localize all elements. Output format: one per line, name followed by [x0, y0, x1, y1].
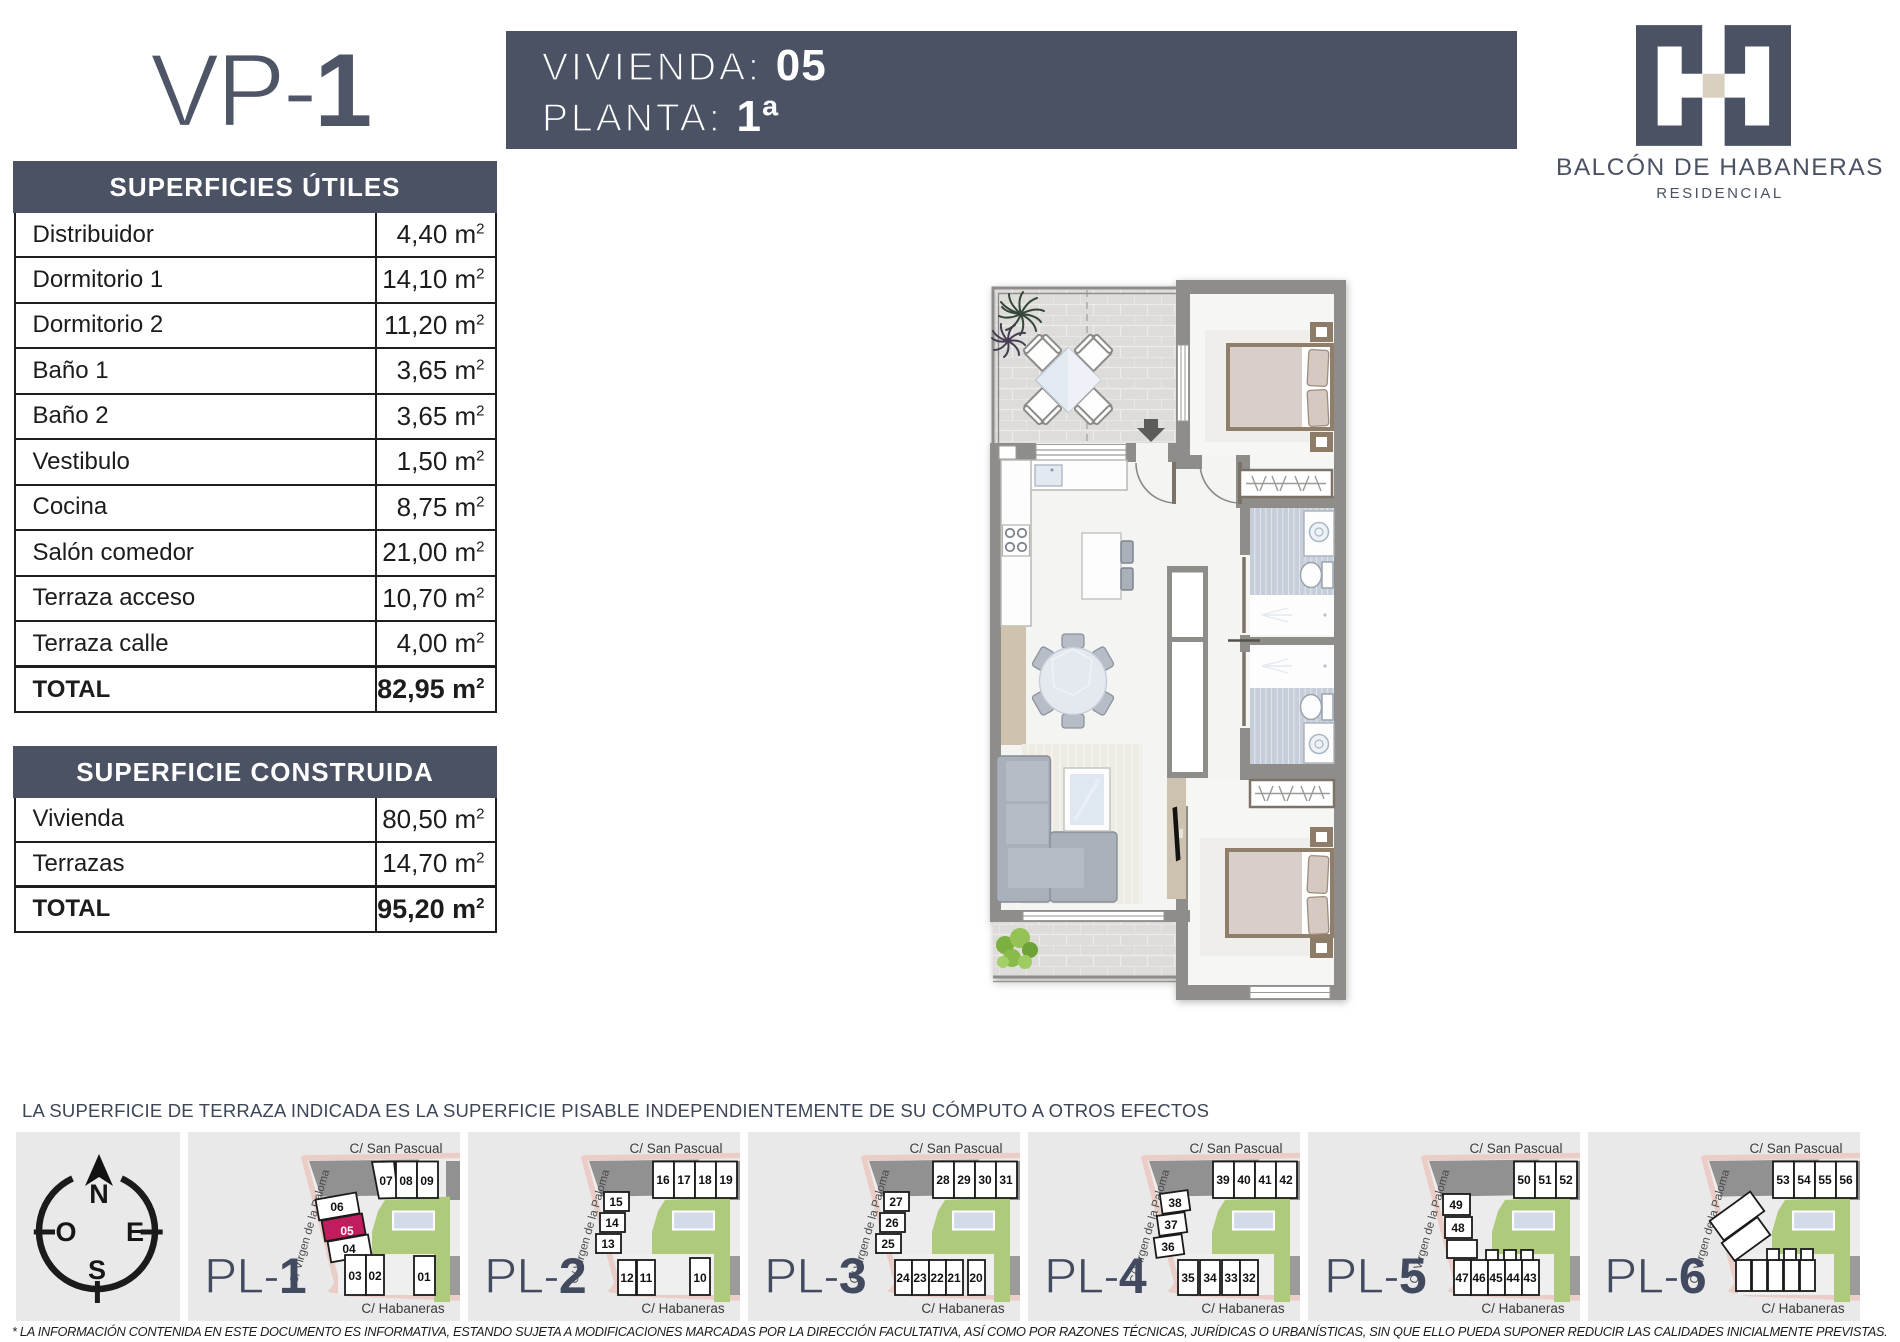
svg-text:40: 40	[1237, 1173, 1251, 1187]
svg-text:34: 34	[1203, 1271, 1217, 1285]
svg-text:14: 14	[605, 1216, 619, 1230]
svg-text:56: 56	[1839, 1173, 1853, 1187]
svg-text:07: 07	[379, 1174, 393, 1188]
svg-text:27: 27	[889, 1195, 903, 1209]
svg-text:15: 15	[609, 1195, 623, 1209]
svg-text:45: 45	[1489, 1271, 1503, 1285]
svg-text:37: 37	[1164, 1218, 1178, 1232]
svg-text:24: 24	[896, 1271, 910, 1285]
svg-text:21: 21	[947, 1271, 961, 1285]
svg-text:05: 05	[340, 1224, 354, 1238]
svg-text:06: 06	[330, 1200, 344, 1214]
svg-text:25: 25	[881, 1237, 895, 1251]
svg-text:39: 39	[1216, 1173, 1230, 1187]
svg-text:48: 48	[1451, 1221, 1465, 1235]
svg-text:13: 13	[601, 1237, 615, 1251]
svg-text:44: 44	[1506, 1271, 1520, 1285]
svg-text:55: 55	[1818, 1173, 1832, 1187]
svg-text:09: 09	[420, 1174, 434, 1188]
svg-text:51: 51	[1538, 1173, 1552, 1187]
svg-text:17: 17	[677, 1173, 691, 1187]
svg-text:E: E	[126, 1217, 144, 1247]
svg-text:10: 10	[693, 1271, 707, 1285]
svg-text:47: 47	[1455, 1271, 1469, 1285]
svg-text:43: 43	[1523, 1271, 1537, 1285]
svg-text:01: 01	[417, 1270, 431, 1284]
svg-text:20: 20	[969, 1271, 983, 1285]
svg-text:35: 35	[1181, 1271, 1195, 1285]
svg-text:38: 38	[1168, 1196, 1182, 1210]
svg-text:19: 19	[719, 1173, 733, 1187]
svg-text:N: N	[89, 1179, 109, 1209]
svg-text:49: 49	[1449, 1198, 1463, 1212]
svg-text:41: 41	[1258, 1173, 1272, 1187]
svg-text:22: 22	[930, 1271, 944, 1285]
svg-text:23: 23	[913, 1271, 927, 1285]
svg-text:53: 53	[1776, 1173, 1790, 1187]
svg-text:42: 42	[1279, 1173, 1293, 1187]
svg-text:18: 18	[698, 1173, 712, 1187]
svg-text:32: 32	[1242, 1271, 1256, 1285]
svg-text:16: 16	[656, 1173, 670, 1187]
svg-text:52: 52	[1559, 1173, 1573, 1187]
svg-text:50: 50	[1517, 1173, 1531, 1187]
svg-text:26: 26	[885, 1216, 899, 1230]
svg-text:36: 36	[1161, 1240, 1175, 1254]
svg-text:08: 08	[399, 1174, 413, 1188]
svg-text:46: 46	[1472, 1271, 1486, 1285]
svg-text:S: S	[88, 1255, 106, 1285]
svg-text:29: 29	[957, 1173, 971, 1187]
svg-text:54: 54	[1797, 1173, 1811, 1187]
svg-text:31: 31	[999, 1173, 1013, 1187]
svg-text:03: 03	[348, 1269, 362, 1283]
svg-text:11: 11	[640, 1271, 653, 1285]
svg-text:30: 30	[978, 1173, 992, 1187]
svg-text:02: 02	[368, 1269, 382, 1283]
svg-text:33: 33	[1224, 1271, 1238, 1285]
svg-text:O: O	[55, 1217, 76, 1247]
svg-text:12: 12	[620, 1271, 634, 1285]
svg-text:04: 04	[342, 1242, 356, 1256]
svg-text:28: 28	[936, 1173, 950, 1187]
